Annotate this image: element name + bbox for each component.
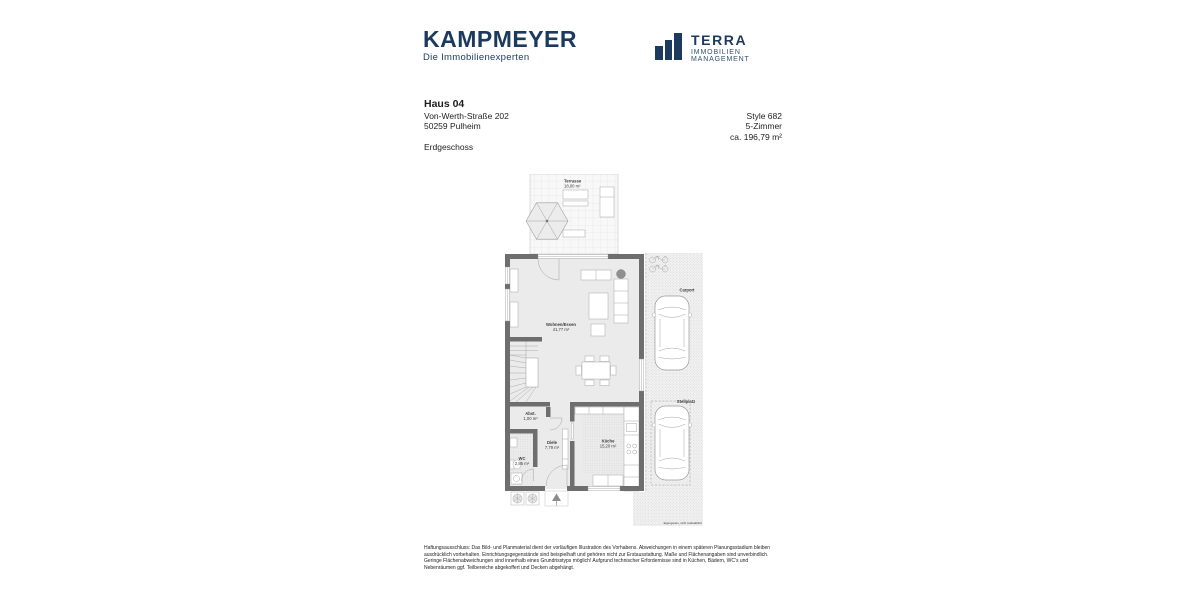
address-street: Von-Werth-Straße 202 xyxy=(424,111,509,121)
room-area: 18,00 m² xyxy=(564,184,581,189)
plant-icon xyxy=(617,270,626,279)
kampmeyer-tagline: Die Immobilienexperten xyxy=(423,52,593,63)
room-area: 1,00 m² xyxy=(523,416,538,421)
disclaimer-text: Haftungsausschluss: Das Bild- und Planma… xyxy=(424,545,772,571)
page-title: Haus 04 xyxy=(424,98,464,110)
room-area: 7,79 m² xyxy=(545,445,560,450)
floor-label: Erdgeschoss xyxy=(424,142,473,152)
kampmeyer-logo: KAMPMEYER Die Immobilienexperten xyxy=(423,28,593,63)
area-label: ca. 196,79 m² xyxy=(532,132,782,142)
style-label: Style 682 xyxy=(532,111,782,121)
room-area: 15,20 m² xyxy=(600,444,617,449)
address-city: 50259 Pulheim xyxy=(424,121,481,131)
terra-subtitle: IMMOBILIEN MANAGEMENT xyxy=(691,49,794,63)
expose-page: KAMPMEYER Die Immobilienexperten TERRA I… xyxy=(0,0,1200,600)
plan-caption: Eigengarten, nicht maßstäblich xyxy=(664,521,703,525)
room-area: 41,77 m² xyxy=(553,327,570,332)
floorplan-drawing: Terrasse 18,00 m² Wohnen/Essen 41,77 m² … xyxy=(505,174,703,526)
room-area: 2,85 m² xyxy=(515,461,530,466)
terra-wordmark: TERRA xyxy=(691,32,747,48)
kampmeyer-wordmark: KAMPMEYER xyxy=(423,28,593,50)
entrance xyxy=(545,491,568,506)
rooms-label: 5-Zimmer xyxy=(532,121,782,131)
stellplatz-label: Stellplatz xyxy=(677,399,695,404)
bar-chart-icon xyxy=(654,32,684,60)
carport-label: Carport xyxy=(679,288,695,293)
